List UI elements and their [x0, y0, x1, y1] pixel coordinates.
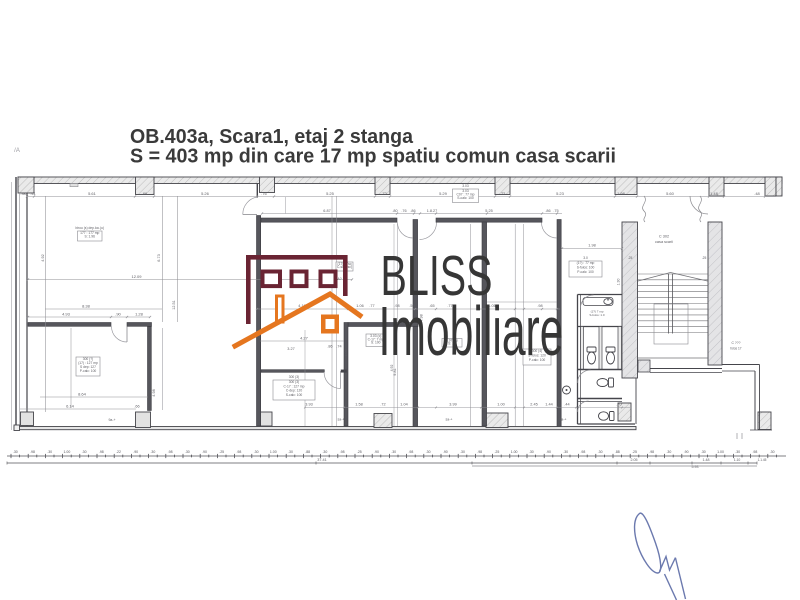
svg-text:S-folos: 1.0: S-folos: 1.0 [589, 313, 605, 317]
svg-text:3.03: 3.03 [462, 184, 469, 188]
svg-text:.86: .86 [410, 209, 415, 213]
svg-text:.30: .30 [770, 450, 775, 454]
svg-text:.74: .74 [336, 345, 341, 349]
svg-text:1.04: 1.04 [400, 402, 407, 406]
svg-text:sa-+: sa-+ [560, 418, 567, 422]
svg-text:.98: .98 [236, 450, 241, 454]
svg-text:.98: .98 [408, 450, 413, 454]
svg-text:.30: .30 [82, 450, 87, 454]
svg-text:1.06: 1.06 [344, 350, 348, 357]
svg-text:.90: .90 [546, 450, 551, 454]
svg-text:1.30: 1.30 [617, 279, 621, 286]
svg-text:.90: .90 [374, 450, 379, 454]
svg-text:8.64: 8.64 [78, 391, 87, 396]
svg-text:.66: .66 [134, 404, 139, 408]
svg-text:C ???: C ??? [731, 341, 740, 345]
svg-text:.90: .90 [115, 311, 121, 316]
svg-text:.30: .30 [460, 450, 465, 454]
svg-text:4.27: 4.27 [300, 335, 309, 340]
svg-text:1.00: 1.00 [270, 450, 277, 454]
svg-text:1.48: 1.48 [703, 458, 710, 462]
svg-text:.25: .25 [628, 256, 633, 260]
svg-text:.25: .25 [632, 450, 637, 454]
svg-text:.98: .98 [477, 450, 482, 454]
svg-text:S: 1.96: S: 1.96 [85, 235, 96, 239]
svg-text:1.00: 1.00 [497, 402, 504, 406]
svg-text:3.93: 3.93 [305, 402, 312, 406]
svg-text:5.93: 5.93 [692, 465, 699, 469]
svg-text:birou (s) dep.loc.(u): birou (s) dep.loc.(u) [75, 226, 104, 230]
svg-text:folos 17: folos 17 [730, 347, 741, 351]
svg-text:12.51: 12.51 [172, 300, 176, 310]
svg-text:.30: .30 [701, 450, 706, 454]
svg-text:.72: .72 [380, 402, 385, 406]
svg-text:1.58: 1.58 [355, 402, 362, 406]
svg-text:.22: .22 [116, 450, 121, 454]
svg-text:.30: .30 [47, 450, 52, 454]
svg-text:1.06: 1.06 [356, 304, 363, 308]
svg-text:P-calc: 100: P-calc: 100 [80, 369, 97, 373]
svg-text:.48: .48 [754, 191, 760, 196]
svg-text:4.98: 4.98 [152, 389, 156, 396]
svg-text:300 (3): 300 (3) [289, 375, 299, 379]
svg-text:5.23: 5.23 [556, 191, 565, 196]
svg-text:.70: .70 [616, 402, 621, 406]
svg-text:.90: .90 [202, 450, 207, 454]
svg-text:.30: .30 [288, 450, 293, 454]
svg-text:5.26: 5.26 [201, 191, 210, 196]
svg-text:5.29: 5.29 [439, 191, 448, 196]
svg-text:5.25: 5.25 [326, 191, 335, 196]
svg-text:4.92: 4.92 [41, 254, 45, 261]
svg-text:.66: .66 [142, 191, 148, 196]
svg-text:.90: .90 [443, 450, 448, 454]
svg-text:P-calc: 100: P-calc: 100 [577, 270, 594, 274]
svg-text:3.0: 3.0 [583, 256, 588, 260]
svg-text:.30: .30 [185, 450, 190, 454]
svg-text:.30: .30 [150, 450, 155, 454]
svg-text:.30: .30 [254, 450, 259, 454]
svg-text:1.1.45: 1.1.45 [758, 458, 767, 462]
svg-text:9a-+: 9a-+ [108, 418, 115, 422]
svg-text:1.10: 1.10 [734, 458, 741, 462]
svg-text:.30: .30 [529, 450, 534, 454]
svg-text:.75: .75 [553, 209, 558, 213]
svg-text:.98: .98 [99, 450, 104, 454]
svg-text:.44: .44 [564, 402, 569, 406]
svg-text:1.44: 1.44 [545, 402, 552, 406]
svg-text:.98: .98 [30, 450, 35, 454]
svg-text:S-calc: 100: S-calc: 100 [286, 393, 303, 397]
svg-text:.90: .90 [133, 450, 138, 454]
svg-text:1.00: 1.00 [63, 450, 70, 454]
svg-text:A?: A? [337, 277, 341, 281]
svg-text:.98: .98 [649, 450, 654, 454]
svg-text:6.73: 6.73 [157, 254, 161, 261]
svg-text:1.28: 1.28 [135, 311, 144, 316]
svg-text:S-calc: 100: S-calc: 100 [457, 196, 474, 200]
svg-text:.77: .77 [369, 304, 374, 308]
svg-text:1.48: 1.48 [710, 191, 719, 196]
svg-text:sa-+: sa-+ [446, 418, 453, 422]
svg-text:2.45: 2.45 [530, 402, 537, 406]
svg-text:1.00: 1.00 [717, 450, 724, 454]
svg-text:.25: .25 [357, 450, 362, 454]
svg-text:.98: .98 [340, 450, 345, 454]
svg-text:.25: .25 [494, 450, 499, 454]
svg-text:C 302: C 302 [659, 235, 669, 239]
svg-text:.86: .86 [545, 209, 550, 213]
svg-text:1.00: 1.00 [511, 450, 518, 454]
svg-text:1.8.27: 1.8.27 [427, 209, 438, 213]
svg-text:.90: .90 [684, 450, 689, 454]
svg-text:.41: .41 [30, 191, 36, 196]
svg-text:12.09: 12.09 [131, 274, 142, 279]
svg-text:casa scarii: casa scarii [655, 240, 673, 244]
svg-text:1.98: 1.98 [617, 191, 626, 196]
svg-text:sa-+: sa-+ [338, 418, 345, 422]
svg-text:.98: .98 [580, 450, 585, 454]
svg-text:.30: .30 [598, 450, 603, 454]
svg-text:.88: .88 [615, 450, 620, 454]
svg-text:.25: .25 [702, 256, 707, 260]
svg-text:.25: .25 [219, 450, 224, 454]
svg-text:S = 403 mp din care 17 mp spat: S = 403 mp din care 17 mp spatiu comun c… [130, 146, 616, 168]
svg-text:37.41: 37.41 [317, 458, 327, 462]
svg-text:6.14: 6.14 [66, 403, 75, 408]
svg-text:.76: .76 [261, 191, 267, 196]
svg-text:5.61: 5.61 [88, 191, 97, 196]
svg-text:5.60: 5.60 [666, 191, 675, 196]
svg-text:.72: .72 [381, 191, 387, 196]
svg-text:.98: .98 [20, 191, 26, 196]
svg-text:3.27: 3.27 [287, 347, 294, 351]
svg-text:6.87: 6.87 [323, 209, 330, 213]
svg-text:4.93: 4.93 [62, 311, 71, 316]
svg-text:5.25: 5.25 [485, 209, 492, 213]
svg-text:/A: /A [14, 148, 20, 154]
svg-text:.98: .98 [168, 450, 173, 454]
svg-text:.30: .30 [666, 450, 671, 454]
svg-text:.86: .86 [327, 345, 332, 349]
svg-text:.98: .98 [752, 450, 757, 454]
svg-text:.30: .30 [426, 450, 431, 454]
svg-text:2.05: 2.05 [631, 458, 638, 462]
svg-text:.30: .30 [563, 450, 568, 454]
svg-text:.30: .30 [391, 450, 396, 454]
svg-text:8.38: 8.38 [82, 303, 91, 308]
svg-text:.30: .30 [735, 450, 740, 454]
svg-text:.72: .72 [500, 191, 506, 196]
svg-text:Imobiliare: Imobiliare [379, 292, 564, 370]
svg-text:.88: .88 [305, 450, 310, 454]
svg-text:3.99: 3.99 [449, 402, 456, 406]
svg-text:.30: .30 [322, 450, 327, 454]
svg-text:.80: .80 [392, 209, 397, 213]
svg-text:.30: .30 [13, 450, 18, 454]
svg-text:1.98: 1.98 [588, 244, 595, 248]
svg-text:.76: .76 [401, 209, 406, 213]
